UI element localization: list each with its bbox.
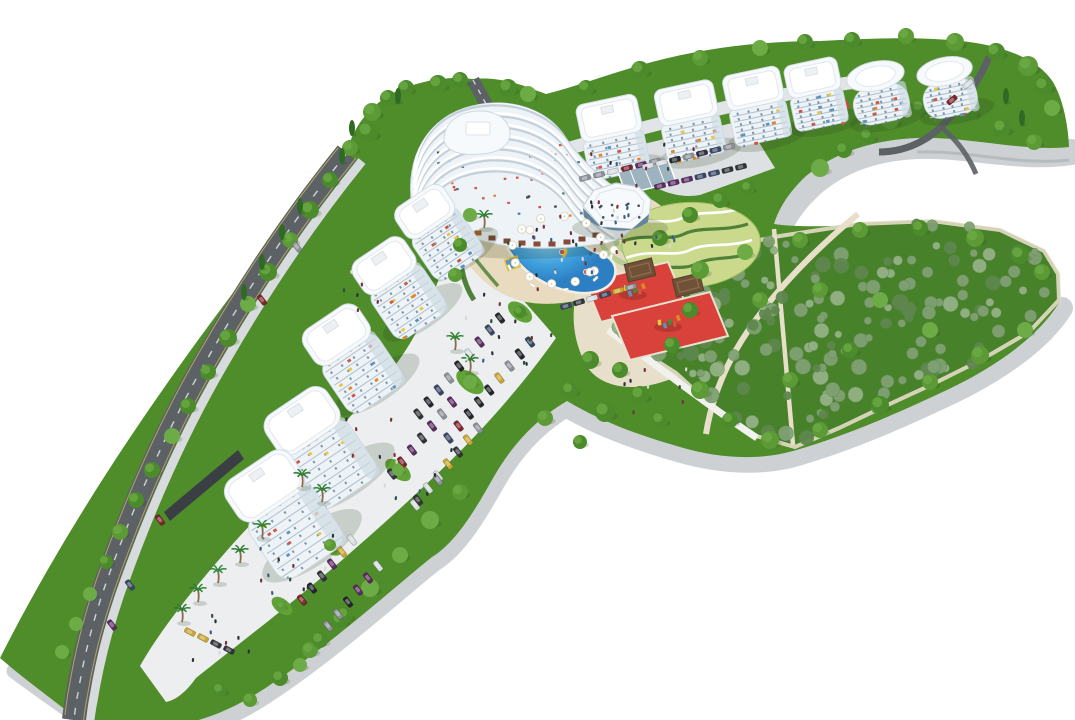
terrace-table xyxy=(599,206,602,209)
terrace-table xyxy=(638,216,641,219)
person xyxy=(685,367,687,371)
person xyxy=(260,579,262,583)
shrub xyxy=(1008,266,1020,278)
terrace-table xyxy=(637,204,640,207)
shrub xyxy=(957,290,968,301)
shrub xyxy=(927,360,940,373)
shrub xyxy=(866,280,880,294)
person xyxy=(361,282,363,286)
shrub xyxy=(689,370,697,378)
shrub xyxy=(855,266,868,279)
person xyxy=(248,650,250,654)
person xyxy=(393,453,395,457)
shop-awning xyxy=(549,242,556,247)
shrub xyxy=(892,294,908,310)
shrub xyxy=(778,426,793,441)
person xyxy=(214,619,216,623)
shrub xyxy=(986,276,1001,291)
tree xyxy=(429,75,450,93)
person xyxy=(356,293,358,297)
shrub xyxy=(795,359,811,375)
person xyxy=(629,379,631,383)
shrub xyxy=(916,336,927,347)
shrub xyxy=(898,376,906,384)
tree xyxy=(946,33,967,51)
person xyxy=(598,200,600,204)
tree xyxy=(1035,77,1056,95)
person xyxy=(616,162,618,166)
tree xyxy=(573,435,589,449)
person xyxy=(584,261,586,265)
shrub xyxy=(813,365,821,373)
shrub xyxy=(782,241,789,248)
person xyxy=(533,236,535,240)
shrub xyxy=(737,382,750,395)
shrub xyxy=(1031,248,1038,255)
shrub xyxy=(933,242,941,250)
person xyxy=(613,209,615,213)
person xyxy=(663,143,665,147)
shrub xyxy=(815,257,830,272)
shrub xyxy=(877,267,889,279)
shrub xyxy=(819,410,828,419)
person xyxy=(292,564,294,568)
shrub xyxy=(710,362,725,377)
shrub xyxy=(907,348,919,360)
shrub xyxy=(835,331,842,338)
person xyxy=(523,361,525,365)
shrub xyxy=(884,257,892,265)
sun-lounger xyxy=(562,288,568,291)
person xyxy=(332,534,334,538)
shrub xyxy=(907,256,916,265)
shrub xyxy=(957,275,969,287)
shrub xyxy=(776,291,788,303)
person xyxy=(591,205,593,209)
person xyxy=(678,385,680,389)
person xyxy=(352,454,354,458)
person xyxy=(303,600,305,604)
shrub xyxy=(830,291,845,306)
shrub xyxy=(799,431,814,446)
shrub xyxy=(898,320,906,328)
shrub xyxy=(724,319,733,328)
shrub xyxy=(864,317,872,325)
shop-awning xyxy=(579,237,586,242)
site-plan-render xyxy=(0,0,1075,720)
person xyxy=(237,636,239,640)
person xyxy=(589,252,591,256)
shrub xyxy=(991,308,1001,318)
shrub xyxy=(983,248,996,261)
shrub xyxy=(827,341,835,349)
person xyxy=(623,215,625,219)
person xyxy=(627,213,629,217)
shrub xyxy=(881,375,894,388)
tree xyxy=(844,32,862,48)
person xyxy=(225,641,228,645)
shrub xyxy=(728,349,739,360)
shrub xyxy=(865,334,873,342)
person xyxy=(303,587,305,591)
tree xyxy=(987,43,1008,61)
person xyxy=(343,288,345,292)
person xyxy=(483,293,486,297)
person xyxy=(644,368,646,372)
person xyxy=(519,243,521,247)
shrub xyxy=(763,236,775,248)
shrub xyxy=(851,359,867,375)
person xyxy=(647,385,649,389)
terrace-table xyxy=(611,204,614,207)
shrub xyxy=(949,255,960,266)
cypress-tree xyxy=(349,120,357,137)
person xyxy=(561,258,563,262)
shrub xyxy=(893,256,903,266)
shrub xyxy=(761,277,768,284)
shrub xyxy=(881,319,891,329)
person xyxy=(434,473,436,477)
shrub xyxy=(677,352,684,359)
tree xyxy=(898,28,916,44)
tree xyxy=(499,79,520,97)
shrub xyxy=(828,350,837,359)
shrub xyxy=(741,279,750,288)
terrace-table xyxy=(602,216,605,219)
person xyxy=(355,427,358,431)
shrub xyxy=(1019,286,1027,294)
person xyxy=(671,235,673,239)
person xyxy=(635,184,637,188)
shrub xyxy=(1025,310,1037,322)
person xyxy=(210,630,212,634)
shrub xyxy=(972,259,986,273)
shop-awning xyxy=(564,240,571,245)
shrub xyxy=(834,258,849,273)
person xyxy=(395,460,397,464)
shrub xyxy=(748,320,759,331)
shrub xyxy=(830,402,840,412)
shrub xyxy=(960,308,970,318)
shrub xyxy=(806,415,814,423)
tree xyxy=(520,86,538,102)
umbrella xyxy=(526,226,534,234)
person xyxy=(211,614,213,618)
shrub xyxy=(734,360,750,376)
person xyxy=(499,302,501,306)
tree xyxy=(452,72,470,88)
tree xyxy=(752,40,770,56)
person xyxy=(632,410,634,414)
person xyxy=(623,382,625,386)
person xyxy=(591,270,593,274)
shrub xyxy=(848,387,863,402)
shrub xyxy=(1039,287,1050,298)
tree xyxy=(1018,56,1041,76)
person xyxy=(673,238,675,242)
shrub xyxy=(760,343,773,356)
person xyxy=(660,141,663,145)
shrub xyxy=(899,280,910,291)
person xyxy=(655,235,657,239)
shrub xyxy=(697,369,705,377)
shrub xyxy=(1000,276,1012,288)
shrub xyxy=(986,298,994,306)
shrub xyxy=(811,274,820,283)
shrub xyxy=(992,325,1005,338)
shrub xyxy=(922,306,936,320)
person xyxy=(633,156,636,160)
person xyxy=(289,577,292,581)
person xyxy=(543,225,545,229)
shrub xyxy=(978,306,989,317)
person xyxy=(550,238,552,242)
shrub xyxy=(770,247,778,255)
shrub xyxy=(817,315,825,323)
shrub xyxy=(784,392,792,400)
shrub xyxy=(806,300,814,308)
person xyxy=(219,651,221,655)
shrub xyxy=(970,249,978,257)
terrace-table xyxy=(627,202,630,205)
terrace-table xyxy=(611,214,614,217)
tree xyxy=(797,34,815,50)
shrub xyxy=(922,267,933,278)
shrub xyxy=(914,370,924,380)
shrub xyxy=(944,242,956,254)
shrub xyxy=(808,341,818,351)
person xyxy=(531,336,533,340)
shrub xyxy=(814,323,829,338)
person xyxy=(692,147,695,151)
shrub xyxy=(705,350,718,363)
shrub xyxy=(935,344,946,355)
person xyxy=(490,319,492,323)
shrub xyxy=(746,415,759,428)
person xyxy=(537,287,539,291)
architectural-render xyxy=(0,0,1075,720)
shrub xyxy=(791,256,798,263)
shop-awning xyxy=(534,242,541,247)
shrub xyxy=(943,296,959,312)
shrub xyxy=(772,306,780,314)
shrub xyxy=(826,382,840,396)
